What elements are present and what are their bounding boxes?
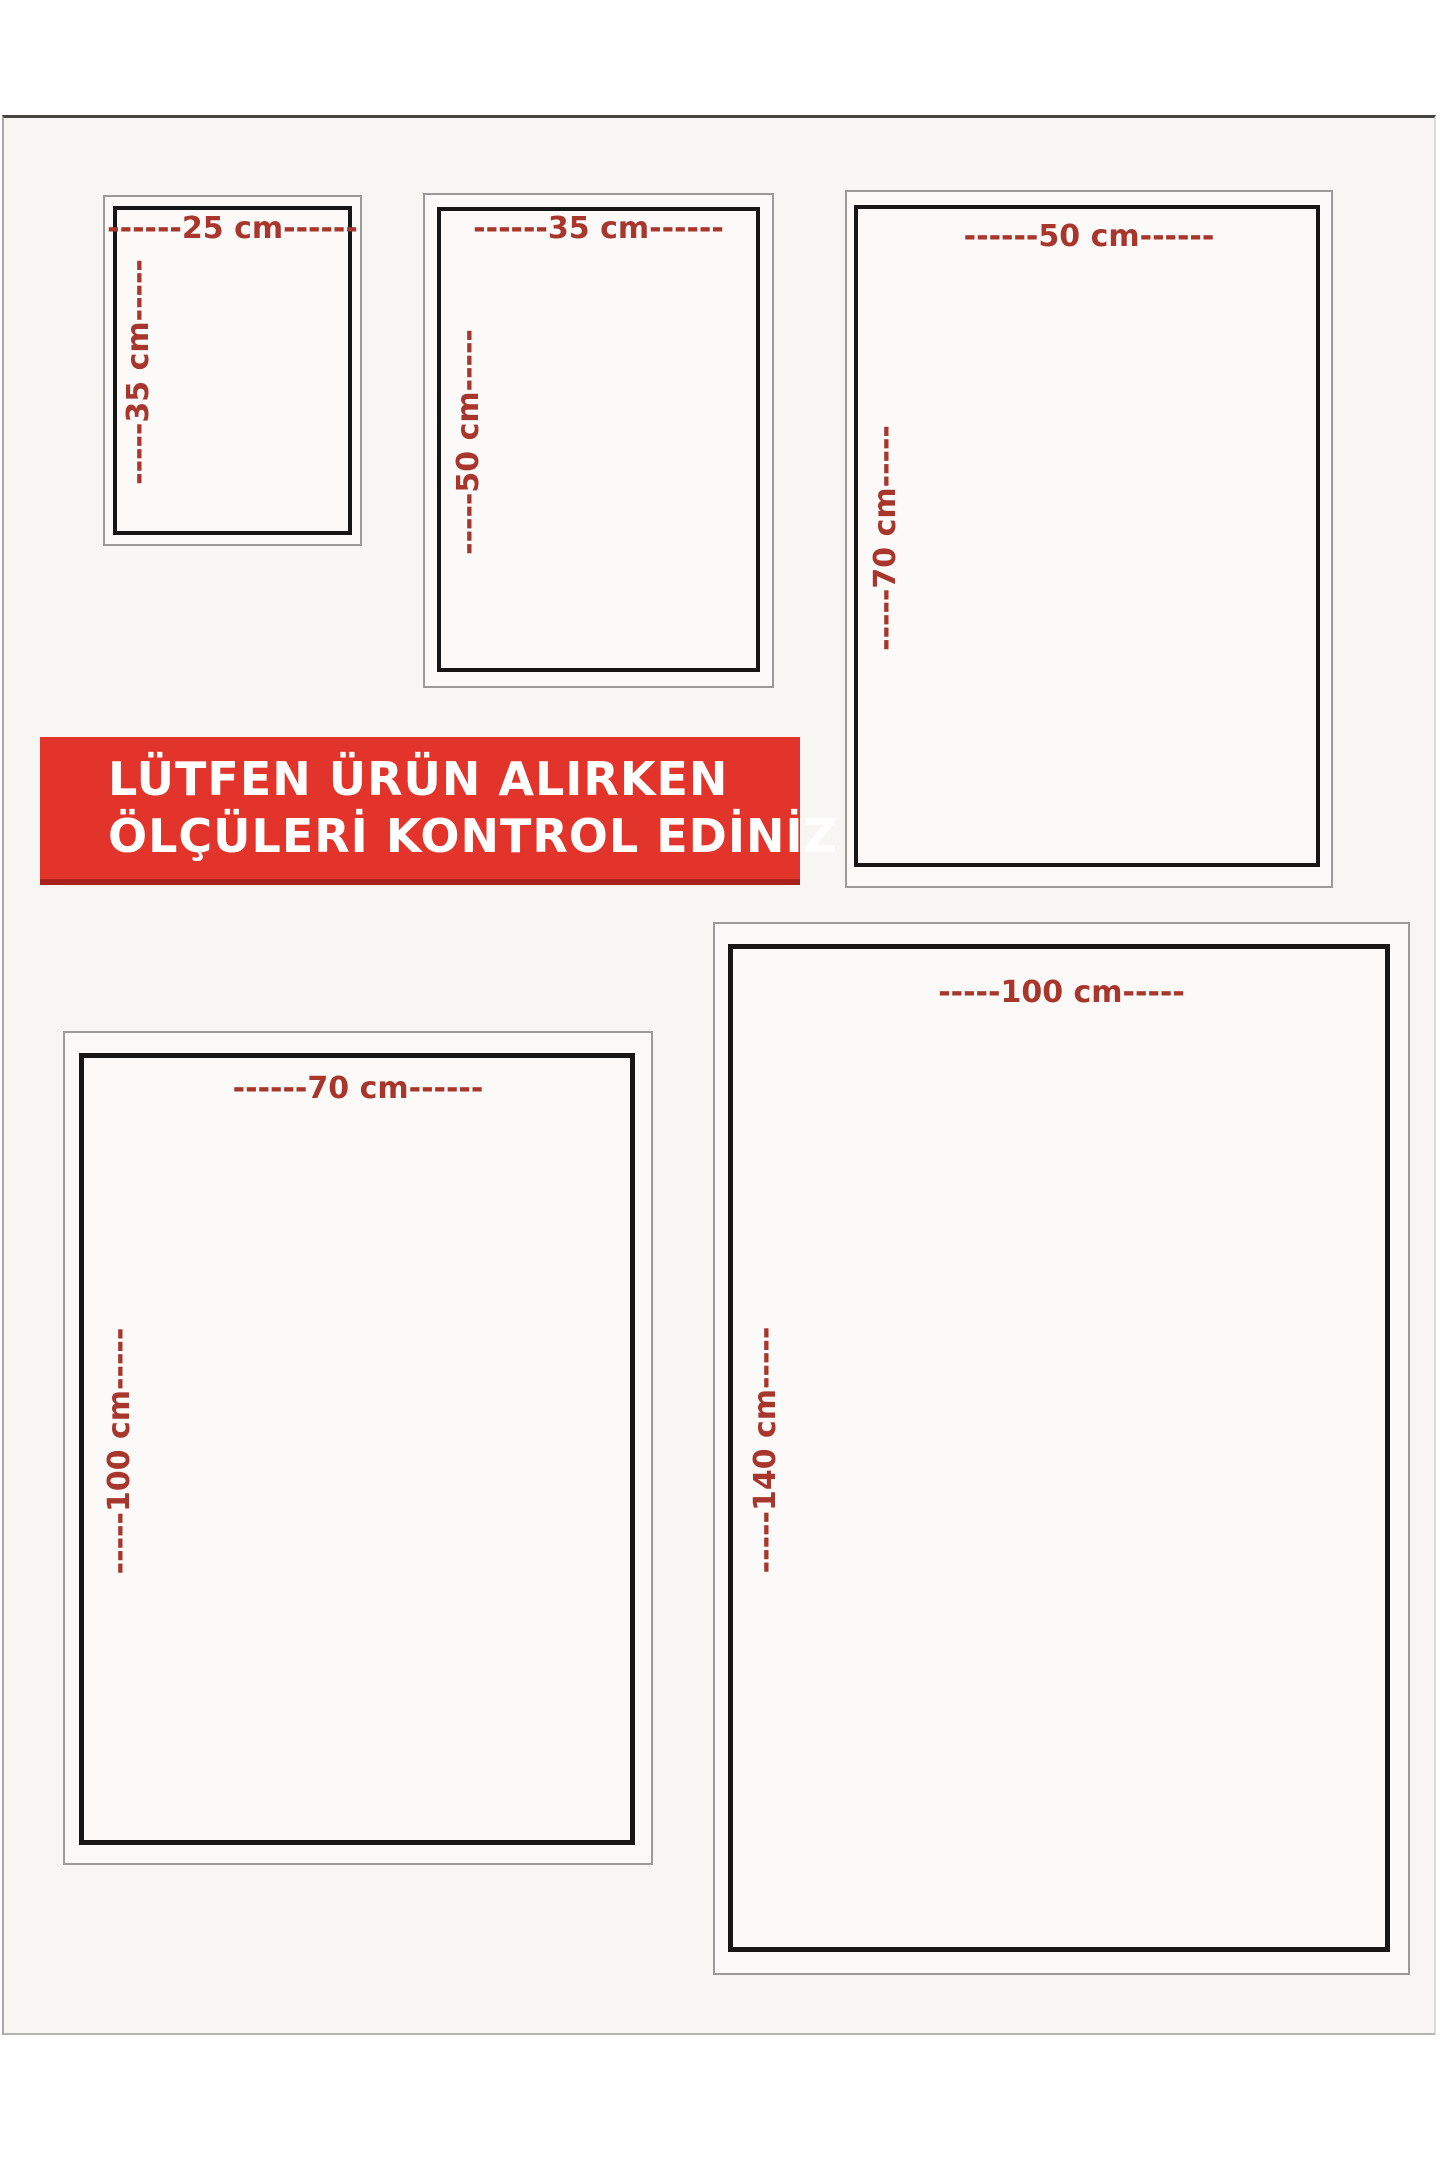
height-dimension-label: -----50 cm----- bbox=[452, 282, 486, 602]
width-dimension-label: -----100 cm----- bbox=[715, 976, 1408, 1010]
height-dimension-label: -----35 cm----- bbox=[122, 212, 156, 532]
height-dimension-label: -----100 cm----- bbox=[103, 1291, 137, 1611]
size-box-70x100: ------70 cm------ -----100 cm----- bbox=[63, 1031, 653, 1865]
size-box-25x35: ------25 cm------ -----35 cm----- bbox=[103, 195, 362, 546]
width-dimension-label: ------50 cm------ bbox=[847, 220, 1331, 254]
size-box-50x70: ------50 cm------ -----70 cm----- bbox=[845, 190, 1333, 888]
warning-banner-line-2: ÖLÇÜLERİ KONTROL EDİNİZ bbox=[108, 808, 800, 865]
size-guide-image: ------25 cm------ -----35 cm----- ------… bbox=[0, 0, 1440, 2160]
height-dimension-label: -----140 cm----- bbox=[749, 1290, 783, 1610]
warning-banner: LÜTFEN ÜRÜN ALIRKEN ÖLÇÜLERİ KONTROL EDİ… bbox=[40, 737, 800, 885]
size-box-frame bbox=[854, 205, 1320, 867]
size-box-100x140: -----100 cm----- -----140 cm----- bbox=[713, 922, 1410, 1975]
width-dimension-label: ------35 cm------ bbox=[425, 212, 772, 246]
size-box-frame bbox=[79, 1053, 635, 1845]
size-box-35x50: ------35 cm------ -----50 cm----- bbox=[423, 193, 774, 688]
width-dimension-label: ------70 cm------ bbox=[65, 1072, 651, 1106]
size-box-frame bbox=[728, 944, 1390, 1952]
height-dimension-label: -----70 cm----- bbox=[869, 378, 903, 698]
warning-banner-line-1: LÜTFEN ÜRÜN ALIRKEN bbox=[108, 751, 800, 808]
